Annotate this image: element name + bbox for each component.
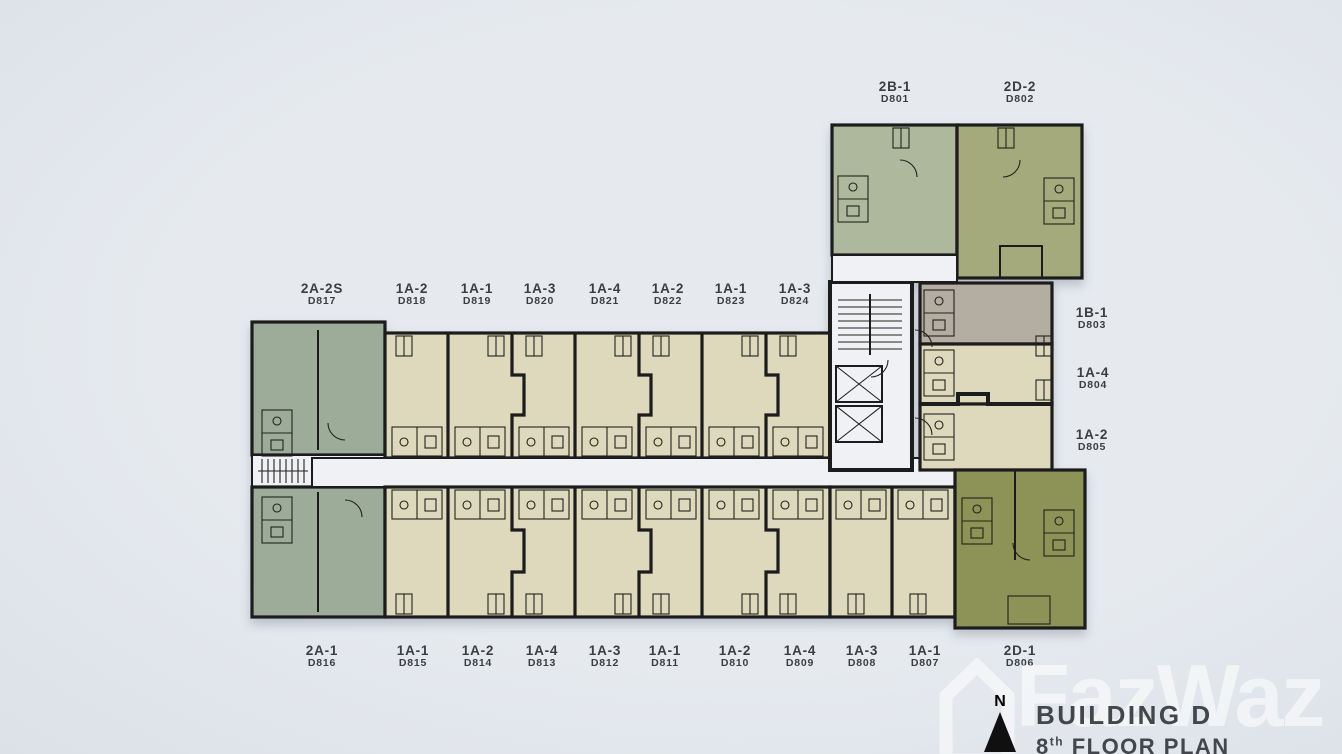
title-block: N BUILDING D 8th FLOOR PLAN [960, 690, 1342, 754]
floor-title-text: FLOOR PLAN [1064, 734, 1230, 754]
floor-plan-drawing [0, 0, 1342, 754]
building-title: BUILDING D [1036, 700, 1213, 731]
floor-title: 8th FLOOR PLAN [1036, 734, 1230, 754]
floor-plan-page: { "page": {"background": "#e2e6ec"}, "pa… [0, 0, 1342, 754]
floor-ordinal: th [1050, 735, 1064, 749]
floor-number: 8 [1036, 734, 1050, 754]
compass: N [978, 694, 1022, 754]
upper-corridor [832, 255, 957, 282]
north-arrow-icon [978, 710, 1022, 752]
north-label: N [978, 694, 1022, 710]
